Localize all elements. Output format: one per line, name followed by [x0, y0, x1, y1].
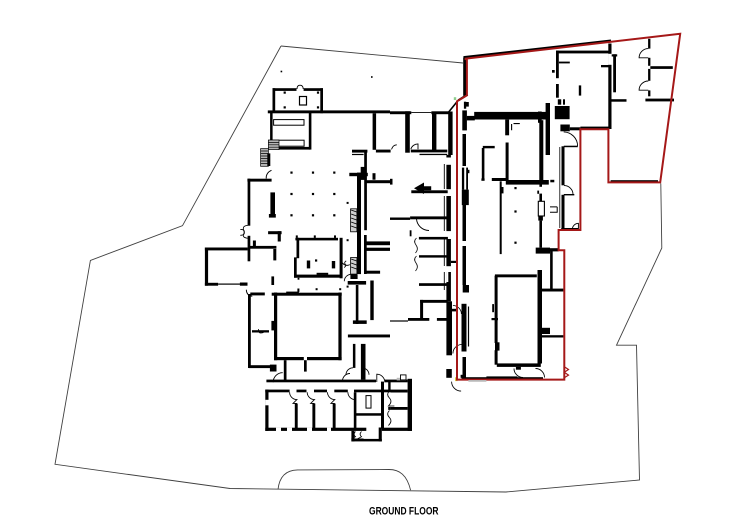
- svg-text:GROUND FLOOR: GROUND FLOOR: [369, 506, 439, 518]
